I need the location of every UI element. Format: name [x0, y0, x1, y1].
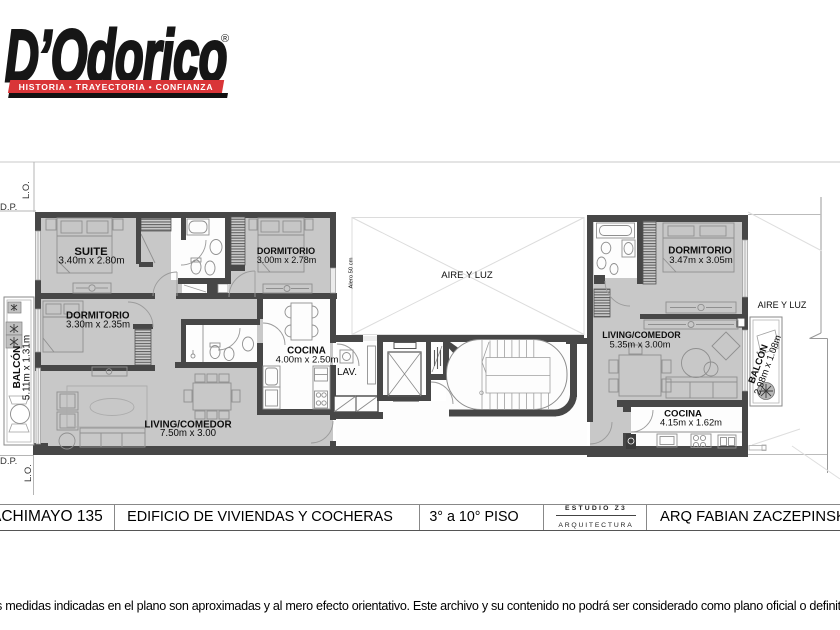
svg-text:3.40m x 2.80m: 3.40m x 2.80m	[58, 256, 124, 267]
svg-text:LIVING/COMEDOR: LIVING/COMEDOR	[602, 330, 681, 340]
svg-text:5.35m x 3.00m: 5.35m x 3.00m	[610, 340, 671, 350]
svg-text:AIRE Y LUZ: AIRE Y LUZ	[758, 300, 807, 310]
svg-text:L.O.: L.O.	[23, 464, 34, 482]
svg-text:4.00m x 2.50m: 4.00m x 2.50m	[276, 355, 339, 366]
svg-text:7.50m x 3.00: 7.50m x 3.00	[160, 428, 217, 439]
svg-text:D.P.: D.P.	[0, 202, 17, 213]
svg-text:AIRE Y LUZ: AIRE Y LUZ	[441, 270, 493, 281]
svg-text:LAV.: LAV.	[337, 367, 357, 378]
svg-text:4.15m x 1.62m: 4.15m x 1.62m	[660, 417, 722, 428]
svg-text:3.47m x 3.05m: 3.47m x 3.05m	[669, 255, 732, 266]
svg-text:3.30m x 2.35m: 3.30m x 2.35m	[66, 320, 130, 331]
svg-text:3.00m x 2.78m: 3.00m x 2.78m	[257, 255, 317, 265]
svg-text:5.11m x 1.31m: 5.11m x 1.31m	[22, 335, 33, 400]
svg-text:Alero 50 cm: Alero 50 cm	[349, 257, 355, 288]
svg-text:L.O.: L.O.	[21, 181, 32, 199]
svg-text:D.P.: D.P.	[0, 456, 17, 467]
